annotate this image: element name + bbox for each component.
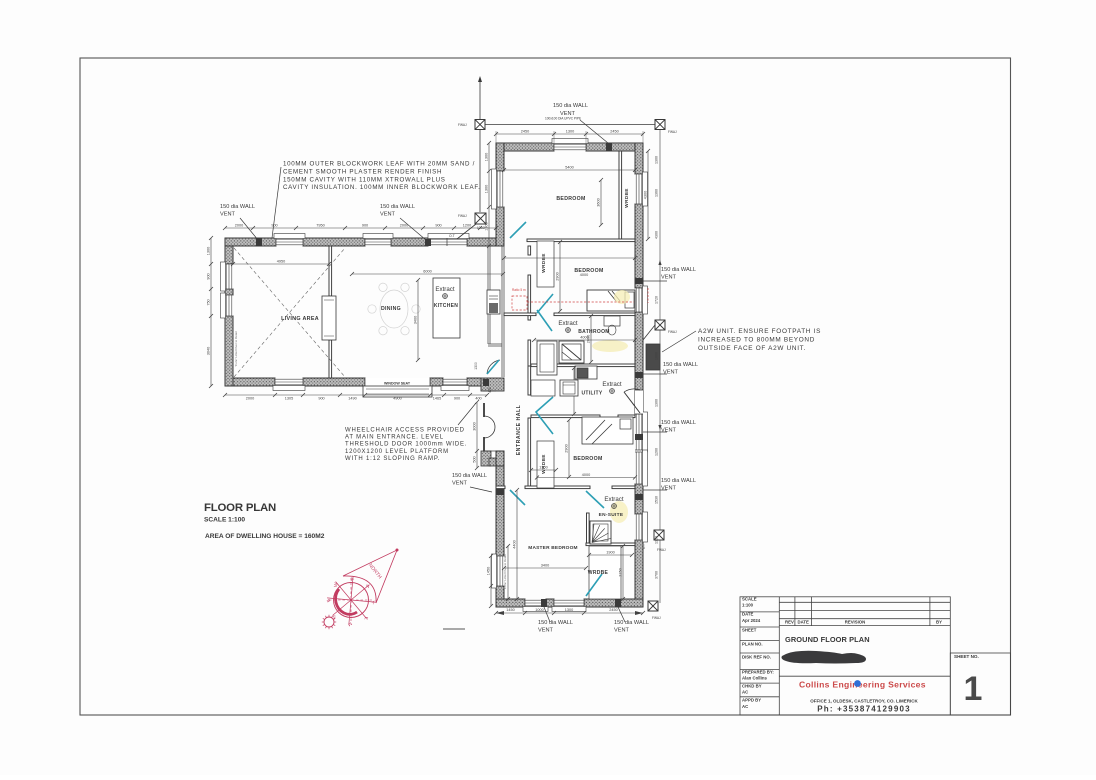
svg-text:4000: 4000 xyxy=(582,473,590,477)
svg-text:400: 400 xyxy=(475,397,481,401)
svg-text:FWAJ: FWAJ xyxy=(657,548,666,552)
svg-text:BEDROOM: BEDROOM xyxy=(556,196,585,202)
svg-text:CEMENT SMOOTH PLASTER RENDER F: CEMENT SMOOTH PLASTER RENDER FINISH xyxy=(283,168,442,175)
svg-text:VENT: VENT xyxy=(661,428,677,434)
svg-text:FWAJ: FWAJ xyxy=(458,214,467,218)
svg-text:1000: 1000 xyxy=(535,608,543,612)
svg-text:2900: 2900 xyxy=(556,272,560,280)
svg-text:4950: 4950 xyxy=(277,260,285,264)
svg-text:900: 900 xyxy=(362,224,368,228)
svg-text:1490: 1490 xyxy=(348,397,356,401)
svg-text:1300: 1300 xyxy=(207,247,211,255)
svg-text:1450: 1450 xyxy=(506,608,514,612)
svg-text:VENT: VENT xyxy=(538,628,554,634)
svg-text:3400: 3400 xyxy=(541,564,549,568)
svg-text:WINDOW SEAT: WINDOW SEAT xyxy=(384,382,411,386)
svg-text:DINING: DINING xyxy=(381,306,401,312)
svg-text:DATE: DATE xyxy=(742,612,754,617)
svg-text:3700: 3700 xyxy=(655,571,659,579)
svg-text:1300: 1300 xyxy=(485,153,489,161)
svg-text:1300: 1300 xyxy=(474,362,478,370)
svg-text:4300: 4300 xyxy=(655,231,659,239)
svg-text:3400: 3400 xyxy=(414,316,418,324)
svg-text:OFFICE 1, OLDESK, CASTLETROY,: OFFICE 1, OLDESK, CASTLETROY, CO. LIMERI… xyxy=(810,699,918,704)
svg-text:100x100 DIA UPVC PIPE: 100x100 DIA UPVC PIPE xyxy=(545,117,581,121)
svg-text:900: 900 xyxy=(435,224,441,228)
svg-text:AT MAIN ENTRANCE. LEVEL: AT MAIN ENTRANCE. LEVEL xyxy=(345,435,444,441)
svg-text:WRDBE: WRDBE xyxy=(624,188,630,208)
svg-text:Ratio 5 m: Ratio 5 m xyxy=(512,288,526,292)
svg-text:2450: 2450 xyxy=(609,608,617,612)
svg-text:100MM OUTER BLOCKWORK LEAF WIT: 100MM OUTER BLOCKWORK LEAF WITH 20MM SAN… xyxy=(283,161,475,168)
svg-text:500: 500 xyxy=(473,456,477,462)
svg-text:WRDBE: WRDBE xyxy=(588,570,609,576)
svg-text:4000: 4000 xyxy=(580,336,588,340)
svg-text:150 dia WALL: 150 dia WALL xyxy=(661,478,696,484)
svg-text:150 dia WALL: 150 dia WALL xyxy=(661,420,696,426)
svg-text:ENTRANCE HALL: ENTRANCE HALL xyxy=(516,404,522,455)
svg-text:1305: 1305 xyxy=(285,397,293,401)
svg-text:1200: 1200 xyxy=(463,224,471,228)
svg-text:OUTSIDE FACE OF A2W UNIT.: OUTSIDE FACE OF A2W UNIT. xyxy=(698,345,806,352)
svg-text:BEDROOM: BEDROOM xyxy=(573,456,602,462)
svg-text:4900: 4900 xyxy=(393,397,401,401)
svg-text:FWAJ: FWAJ xyxy=(652,616,661,620)
svg-text:150 dia WALL: 150 dia WALL xyxy=(380,204,415,210)
svg-text:1200X1200 LEVEL PLATFORM: 1200X1200 LEVEL PLATFORM xyxy=(345,449,449,455)
svg-text:FLOOR PLAN: FLOOR PLAN xyxy=(204,502,276,514)
svg-text:DISK REF NO.: DISK REF NO. xyxy=(742,655,771,660)
svg-text:REVISION: REVISION xyxy=(845,620,866,625)
svg-text:FWAJ: FWAJ xyxy=(668,130,677,134)
svg-text:1300: 1300 xyxy=(565,608,573,612)
svg-text:SHEET NO.: SHEET NO. xyxy=(954,654,979,659)
svg-text:150 dia WALL: 150 dia WALL xyxy=(614,620,649,626)
svg-text:1300: 1300 xyxy=(566,130,574,134)
svg-text:1:100: 1:100 xyxy=(742,603,754,608)
svg-text:UTILITY: UTILITY xyxy=(582,391,603,397)
svg-text:150 dia WALL: 150 dia WALL xyxy=(663,362,698,368)
svg-text:2000: 2000 xyxy=(235,224,243,228)
svg-text:Extract: Extract xyxy=(435,286,455,293)
svg-text:2450: 2450 xyxy=(610,130,618,134)
svg-text:BY: BY xyxy=(936,620,942,625)
svg-text:A2W UNIT. ENSURE FOOTPATH IS: A2W UNIT. ENSURE FOOTPATH IS xyxy=(698,328,821,335)
svg-text:2450: 2450 xyxy=(521,130,529,134)
svg-text:7950: 7950 xyxy=(316,224,324,228)
svg-text:INCREASED TO 800MM BEYOND: INCREASED TO 800MM BEYOND xyxy=(698,337,815,344)
svg-text:APPD BY: APPD BY xyxy=(742,698,761,703)
svg-text:AC: AC xyxy=(742,704,748,709)
svg-text:FWAJ: FWAJ xyxy=(668,330,677,334)
svg-text:1530: 1530 xyxy=(655,496,659,504)
svg-text:4300: 4300 xyxy=(644,191,648,199)
svg-text:1300: 1300 xyxy=(655,399,659,407)
svg-text:900: 900 xyxy=(454,397,460,401)
svg-text:REV: REV xyxy=(785,620,794,625)
svg-text:Alan Collins: Alan Collins xyxy=(742,676,767,681)
svg-text:1465: 1465 xyxy=(433,397,441,401)
svg-text:O.T: O.T xyxy=(449,234,455,238)
svg-text:KITCHEN: KITCHEN xyxy=(434,303,458,309)
svg-text:150 dia WALL: 150 dia WALL xyxy=(553,103,588,109)
svg-text:DATE: DATE xyxy=(798,620,810,625)
svg-text:LIVING AREA: LIVING AREA xyxy=(281,316,319,322)
svg-text:2900: 2900 xyxy=(565,444,569,452)
svg-text:O.T: O.T xyxy=(642,544,646,549)
svg-text:1360: 1360 xyxy=(655,189,659,197)
svg-text:2150: 2150 xyxy=(619,568,623,576)
svg-text:3600: 3600 xyxy=(597,198,601,206)
svg-text:SCALE 1:100: SCALE 1:100 xyxy=(204,517,245,524)
svg-text:WITH 1:12 SLOPING RAMP.: WITH 1:12 SLOPING RAMP. xyxy=(345,456,440,462)
svg-text:Extract: Extract xyxy=(602,381,622,388)
svg-text:BATHROOM: BATHROOM xyxy=(578,329,609,335)
svg-text:Ph: +353874129903: Ph: +353874129903 xyxy=(817,705,911,714)
svg-text:Extract: Extract xyxy=(558,320,578,327)
svg-text:PLAN NO.: PLAN NO. xyxy=(742,642,763,647)
svg-text:PREPARED BY:: PREPARED BY: xyxy=(742,670,774,675)
svg-text:150MM CAVITY WITH 110MM XTROWA: 150MM CAVITY WITH 110MM XTROWALL PLUS xyxy=(283,176,446,183)
svg-text:MASTER BEDROOM: MASTER BEDROOM xyxy=(528,545,577,551)
svg-text:1300: 1300 xyxy=(485,185,489,193)
svg-text:1900: 1900 xyxy=(606,551,614,555)
svg-text:BEDROOM: BEDROOM xyxy=(574,268,603,274)
svg-text:150 dia WALL: 150 dia WALL xyxy=(661,267,696,273)
svg-text:VENT: VENT xyxy=(663,370,679,376)
svg-text:1200: 1200 xyxy=(655,448,659,456)
svg-text:CAVITY INSULATION. 100MM INNER: CAVITY INSULATION. 100MM INNER BLOCKWORK… xyxy=(283,184,481,191)
svg-text:1300: 1300 xyxy=(485,222,489,230)
svg-text:2000: 2000 xyxy=(246,397,254,401)
svg-text:'Conc' Lintel Over to Detail: 'Conc' Lintel Over to Detail xyxy=(234,331,238,367)
svg-text:FWAJ: FWAJ xyxy=(458,123,467,127)
svg-text:SCALE: SCALE xyxy=(742,597,757,602)
svg-text:150 dia WALL: 150 dia WALL xyxy=(220,204,255,210)
svg-text:150 dia WALL: 150 dia WALL xyxy=(538,620,573,626)
svg-text:VENT: VENT xyxy=(614,628,630,634)
svg-text:1: 1 xyxy=(964,670,983,708)
svg-text:Apr 2024: Apr 2024 xyxy=(742,618,761,623)
svg-text:3000: 3000 xyxy=(473,422,477,430)
svg-text:WRDBE: WRDBE xyxy=(541,253,547,273)
svg-text:1300: 1300 xyxy=(655,536,659,544)
svg-text:900: 900 xyxy=(271,224,277,228)
svg-text:CHKD BY: CHKD BY xyxy=(742,684,762,689)
svg-text:425: 425 xyxy=(488,387,492,393)
svg-text:1300: 1300 xyxy=(655,156,659,164)
svg-text:GROUND FLOOR PLAN: GROUND FLOOR PLAN xyxy=(785,635,870,644)
svg-text:VENT: VENT xyxy=(380,212,396,218)
svg-text:1720: 1720 xyxy=(655,296,659,304)
svg-text:900: 900 xyxy=(207,273,211,279)
svg-text:AREA OF DWELLING HOUSE = 160M2: AREA OF DWELLING HOUSE = 160M2 xyxy=(205,533,325,540)
svg-text:VENT: VENT xyxy=(452,481,468,487)
svg-text:900: 900 xyxy=(318,397,324,401)
svg-text:SHEET: SHEET xyxy=(742,628,757,633)
svg-text:EN-SUITE: EN-SUITE xyxy=(599,512,624,518)
svg-text:THRESHOLD DOOR 1000mm WIDE.: THRESHOLD DOOR 1000mm WIDE. xyxy=(345,442,467,448)
svg-text:Collins Engineering Services: Collins Engineering Services xyxy=(799,680,926,690)
svg-text:VENT: VENT xyxy=(220,212,236,218)
svg-text:VENT: VENT xyxy=(661,275,677,281)
svg-text:4400: 4400 xyxy=(513,540,517,548)
svg-text:3040: 3040 xyxy=(207,347,211,355)
svg-text:1000: 1000 xyxy=(655,352,659,360)
svg-text:AC: AC xyxy=(742,690,748,695)
svg-text:750: 750 xyxy=(207,299,211,305)
svg-text:'Conc' Lintel Over to Detail: 'Conc' Lintel Over to Detail xyxy=(503,554,507,590)
svg-text:WHEELCHAIR ACCESS PROVIDED: WHEELCHAIR ACCESS PROVIDED xyxy=(345,428,465,434)
svg-text:VENT: VENT xyxy=(661,486,677,492)
svg-text:150 dia WALL: 150 dia WALL xyxy=(452,473,487,479)
svg-text:1450: 1450 xyxy=(487,567,491,575)
svg-text:6000: 6000 xyxy=(423,270,431,274)
svg-text:WRDBE: WRDBE xyxy=(541,454,547,474)
svg-text:5400: 5400 xyxy=(565,166,573,170)
svg-text:Extract: Extract xyxy=(604,496,624,503)
